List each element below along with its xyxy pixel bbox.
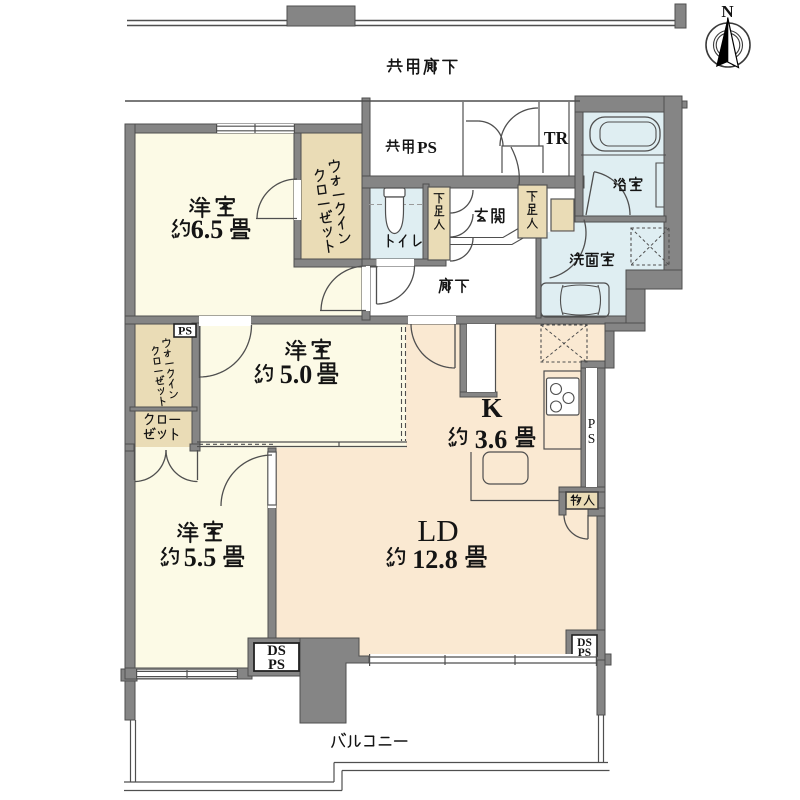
svg-text:LD: LD bbox=[417, 513, 458, 548]
svg-text:3.6: 3.6 bbox=[475, 425, 508, 454]
svg-text:N: N bbox=[721, 2, 734, 21]
svg-text:5.0: 5.0 bbox=[280, 360, 313, 389]
svg-text:6.5: 6.5 bbox=[191, 215, 224, 244]
svg-text:PS: PS bbox=[578, 647, 591, 659]
svg-text:12.8: 12.8 bbox=[412, 545, 458, 574]
svg-text:PS: PS bbox=[178, 324, 192, 338]
svg-text:P: P bbox=[588, 416, 596, 431]
svg-text:5.5: 5.5 bbox=[184, 543, 217, 572]
svg-text:PS: PS bbox=[268, 657, 285, 673]
svg-text:PS: PS bbox=[417, 138, 437, 157]
svg-text:K: K bbox=[481, 393, 502, 423]
svg-text:TR: TR bbox=[544, 128, 569, 148]
svg-text:S: S bbox=[588, 431, 596, 446]
